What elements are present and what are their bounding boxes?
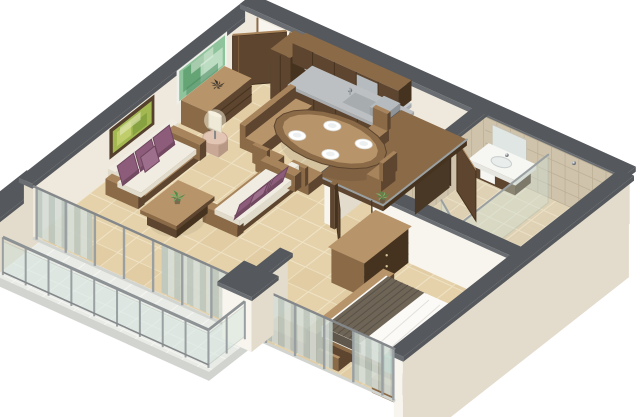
floor-plan-page bbox=[0, 0, 640, 417]
floor-plan-3d-render bbox=[0, 0, 640, 417]
